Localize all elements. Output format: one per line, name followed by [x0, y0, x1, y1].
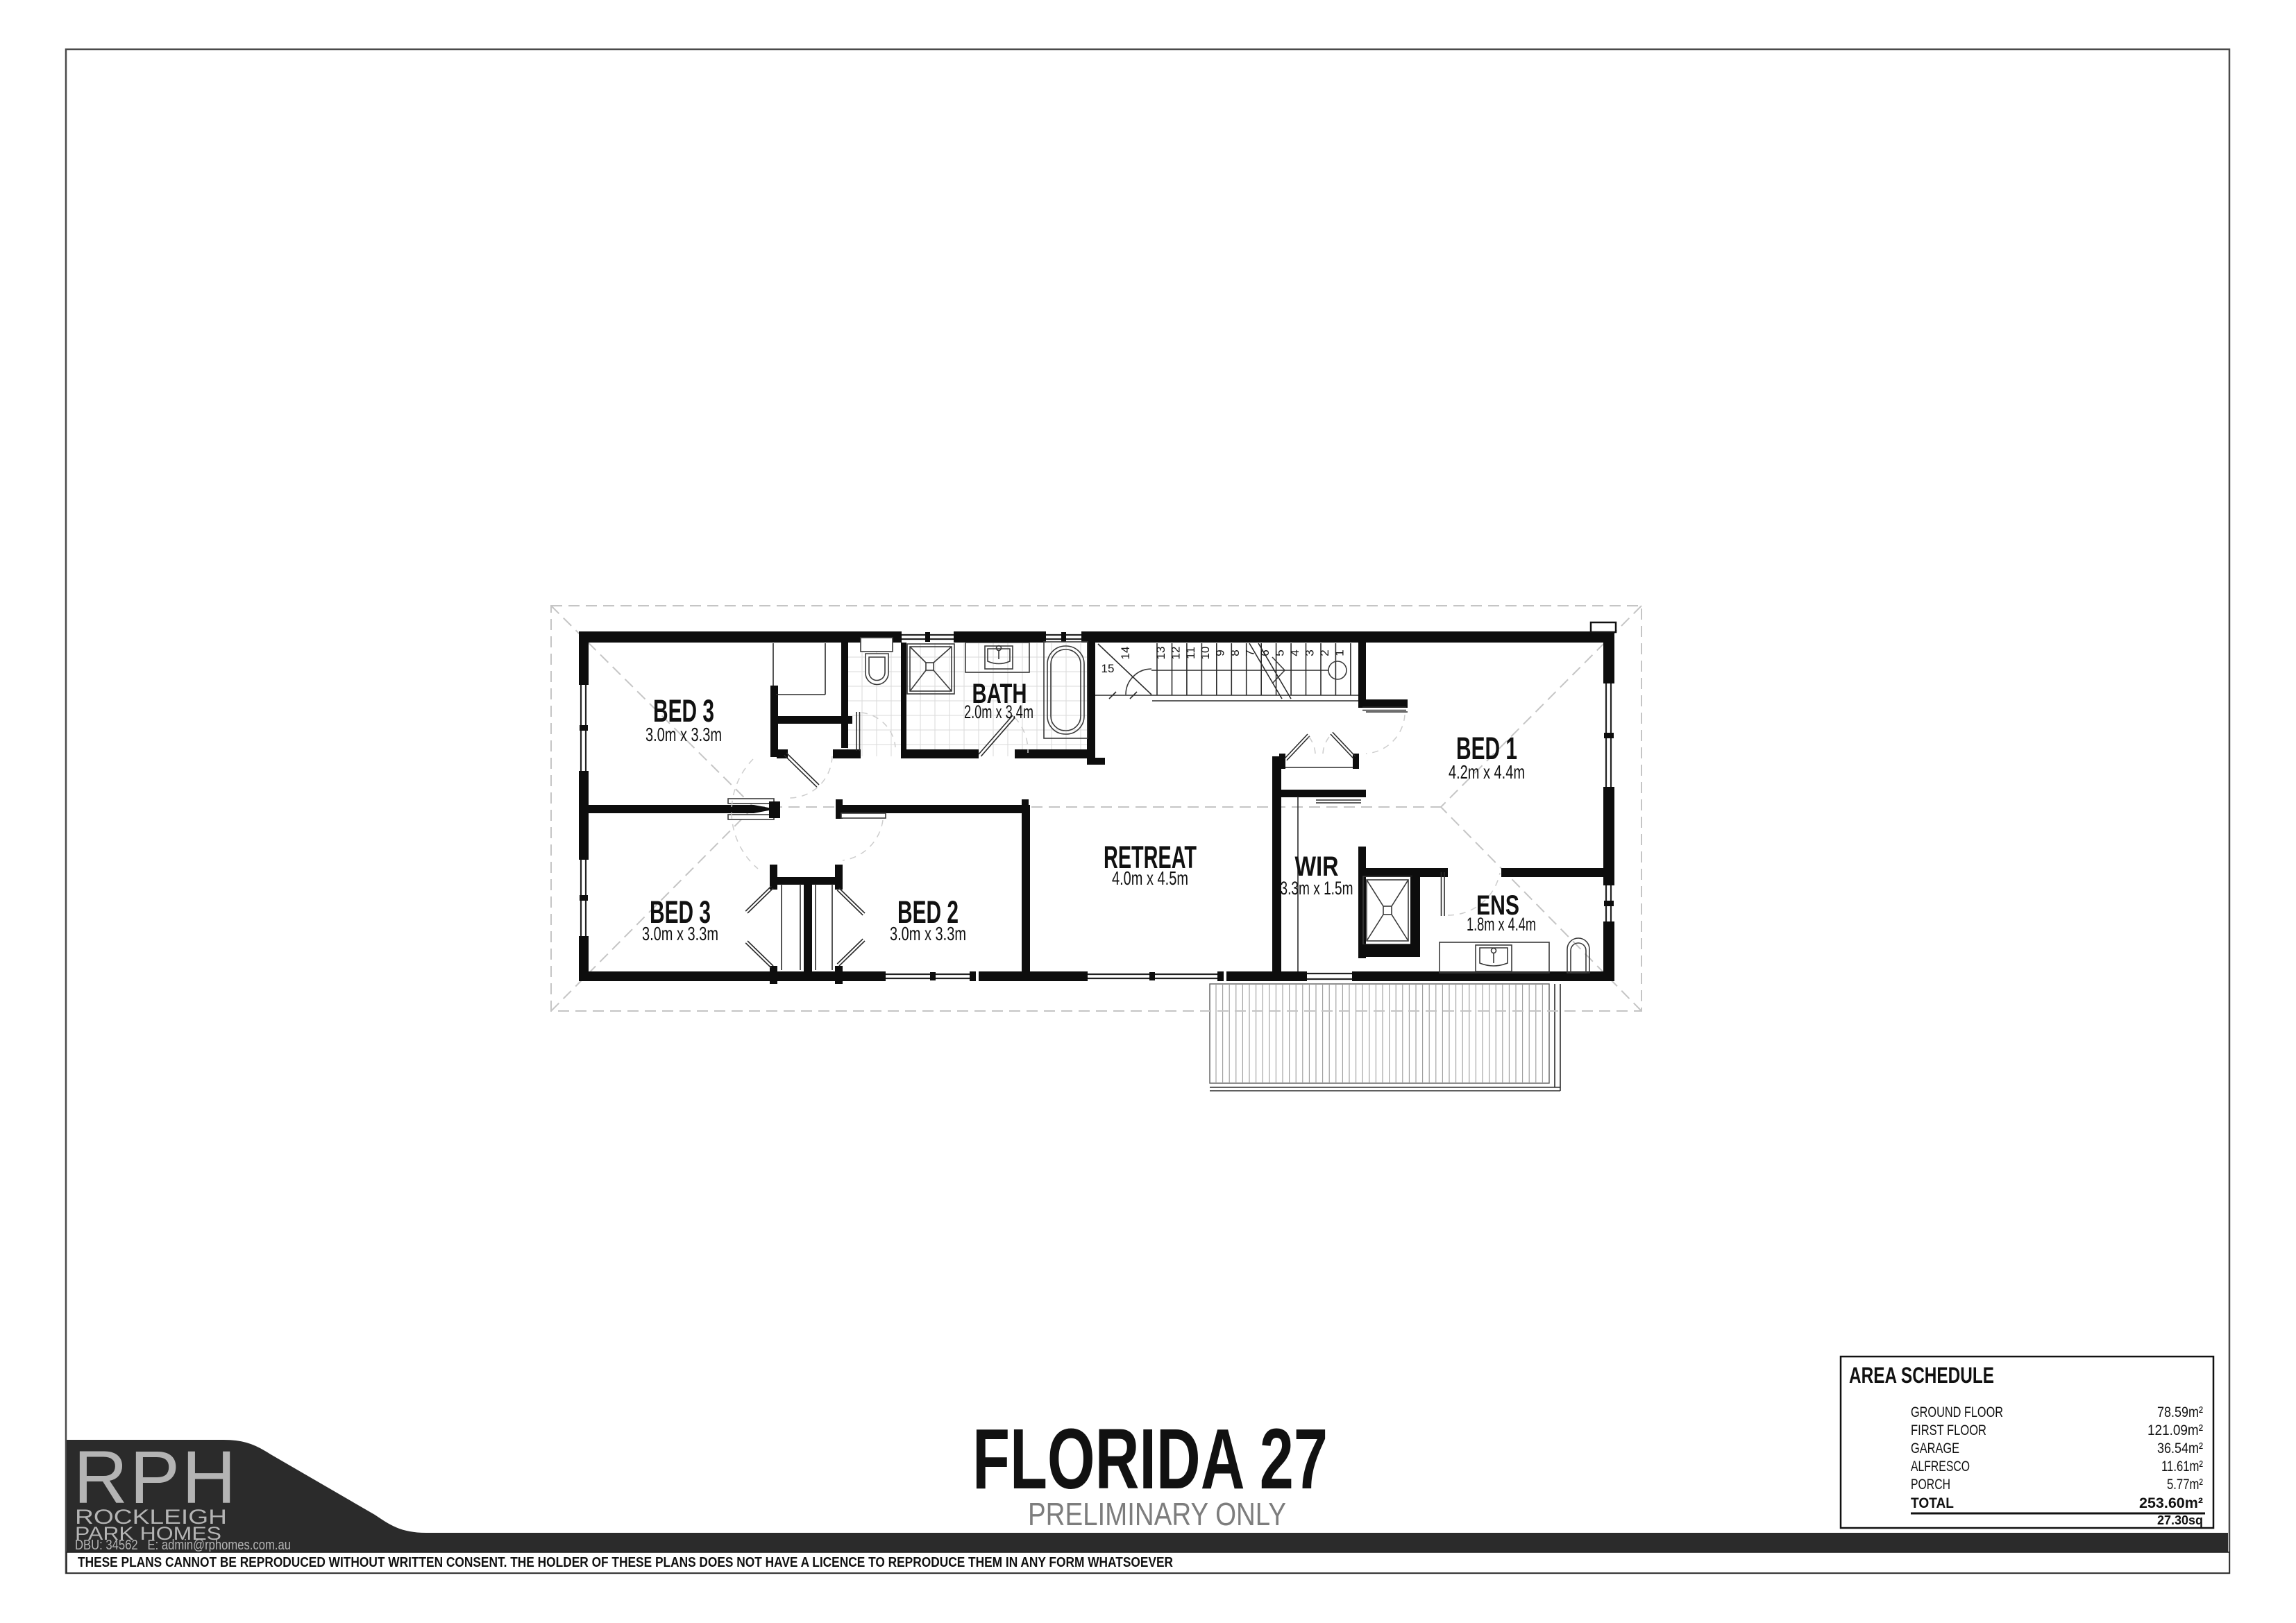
svg-text:PORCH: PORCH: [1911, 1477, 1950, 1493]
svg-text:5: 5: [1274, 649, 1287, 656]
svg-text:3: 3: [1303, 649, 1316, 656]
svg-text:12: 12: [1169, 647, 1182, 660]
svg-text:5.77m²: 5.77m²: [2167, 1477, 2203, 1493]
svg-text:1.8m x 4.4m: 1.8m x 4.4m: [1467, 914, 1536, 935]
svg-text:4: 4: [1288, 649, 1301, 656]
svg-text:10: 10: [1199, 647, 1212, 660]
svg-text:TOTAL: TOTAL: [1911, 1495, 1954, 1511]
svg-text:27.30sq: 27.30sq: [2157, 1513, 2203, 1527]
svg-text:FLORIDA 27: FLORIDA 27: [972, 1412, 1328, 1507]
svg-text:7: 7: [1244, 649, 1257, 656]
svg-text:1: 1: [1333, 649, 1346, 656]
svg-text:9: 9: [1214, 649, 1227, 656]
svg-text:121.09m²: 121.09m²: [2147, 1422, 2203, 1438]
svg-text:14: 14: [1119, 647, 1132, 660]
svg-text:GARAGE: GARAGE: [1911, 1441, 1959, 1456]
svg-text:11.61m²: 11.61m²: [2161, 1459, 2203, 1475]
svg-text:4.0m x 4.5m: 4.0m x 4.5m: [1112, 867, 1188, 889]
svg-text:PRELIMINARY ONLY: PRELIMINARY ONLY: [1028, 1496, 1286, 1532]
svg-text:6: 6: [1258, 649, 1272, 656]
svg-text:78.59m²: 78.59m²: [2157, 1404, 2203, 1420]
svg-text:DBU: 34562 E: admin@rphomes.: DBU: 34562 E: admin@rphomes.com.au: [75, 1538, 291, 1553]
svg-text:15: 15: [1101, 662, 1115, 675]
svg-text:253.60m²: 253.60m²: [2139, 1495, 2203, 1511]
svg-text:ALFRESCO: ALFRESCO: [1911, 1459, 1970, 1475]
svg-text:36.54m²: 36.54m²: [2157, 1441, 2203, 1456]
svg-text:8: 8: [1229, 649, 1242, 656]
svg-text:FIRST FLOOR: FIRST FLOOR: [1911, 1422, 1986, 1438]
svg-text:GROUND FLOOR: GROUND FLOOR: [1911, 1404, 2003, 1420]
svg-text:11: 11: [1184, 647, 1197, 659]
svg-text:4.2m x 4.4m: 4.2m x 4.4m: [1449, 761, 1525, 783]
svg-text:3.0m x 3.3m: 3.0m x 3.3m: [890, 923, 966, 944]
svg-text:THESE PLANS CANNOT BE REPRODUC: THESE PLANS CANNOT BE REPRODUCED WITHOUT…: [78, 1555, 1173, 1570]
svg-text:3.0m x 3.3m: 3.0m x 3.3m: [642, 923, 718, 944]
svg-text:AREA SCHEDULE: AREA SCHEDULE: [1849, 1363, 1994, 1388]
svg-text:13: 13: [1154, 647, 1167, 660]
svg-text:3.0m x 3.3m: 3.0m x 3.3m: [645, 724, 722, 745]
svg-text:2.0m x 3.4m: 2.0m x 3.4m: [964, 702, 1033, 722]
svg-text:3.3m x 1.5m: 3.3m x 1.5m: [1281, 878, 1353, 899]
svg-text:2: 2: [1318, 649, 1331, 656]
